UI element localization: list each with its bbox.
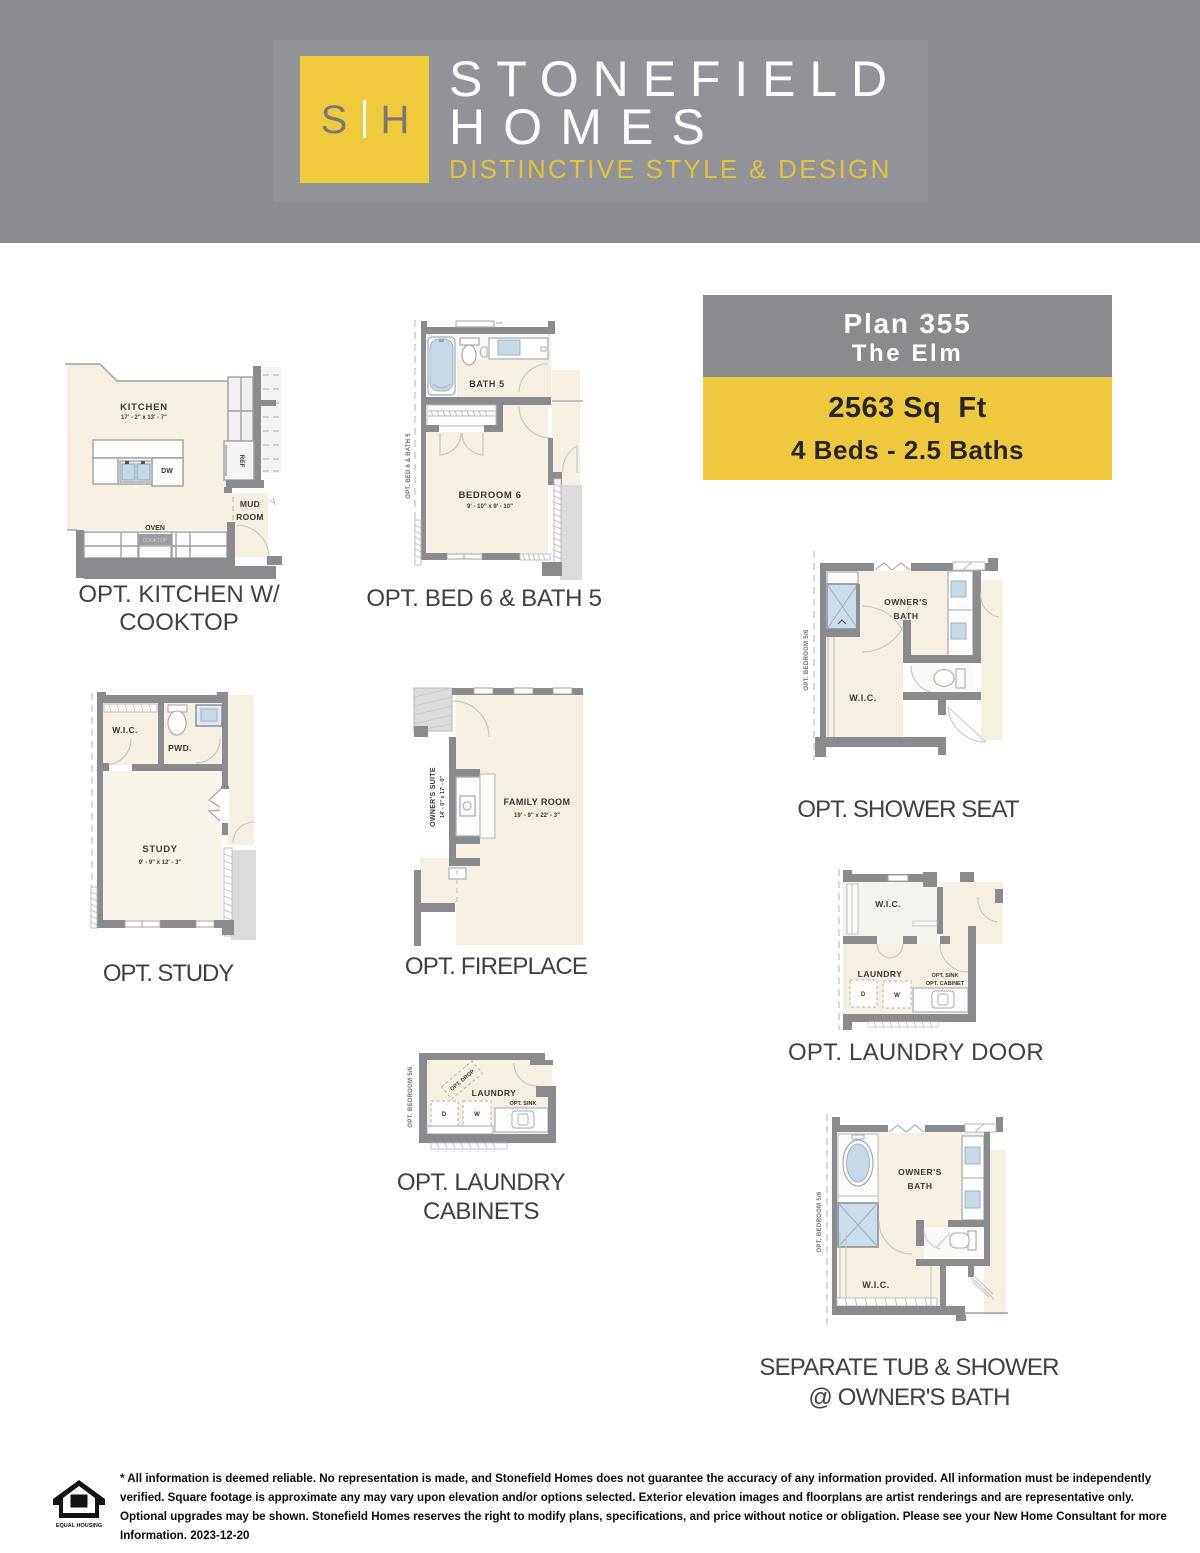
svg-text:MUD: MUD [240,499,260,509]
svg-text:S: S [321,98,348,142]
svg-text:D: D [442,1112,447,1118]
svg-text:COOKTOP: COOKTOP [143,538,169,544]
svg-text:W.I.C.: W.I.C. [862,1280,890,1290]
svg-text:14' - 0" x 17' - 0": 14' - 0" x 17' - 0" [440,776,446,818]
svg-text:ROOM: ROOM [236,512,264,522]
svg-text:OVEN: OVEN [145,525,165,532]
svg-text:REF: REF [238,455,245,468]
svg-text:OWNER'S: OWNER'S [884,597,928,607]
svg-text:W: W [474,1112,480,1118]
svg-text:OPT. BEDROOM 5/6: OPT. BEDROOM 5/6 [804,629,810,691]
svg-text:OWNER'S SUITE: OWNER'S SUITE [430,767,437,827]
svg-text:W.I.C.: W.I.C. [875,899,901,909]
svg-text:KITCHEN: KITCHEN [120,402,168,413]
svg-text:W.I.C.: W.I.C. [849,693,877,703]
svg-text:LAUNDRY: LAUNDRY [858,969,903,979]
svg-text:PWD.: PWD. [168,743,192,753]
svg-text:9' - 10" x 9' - 10": 9' - 10" x 9' - 10" [467,504,513,510]
svg-text:W.I.C.: W.I.C. [112,725,138,735]
svg-text:OPT. BED 6 & BATH 5: OPT. BED 6 & BATH 5 [406,433,412,499]
svg-text:OPT. SINK: OPT. SINK [932,973,959,979]
svg-text:OPT. SINK: OPT. SINK [510,1101,537,1107]
svg-text:OPT. BEDROOM 5/6: OPT. BEDROOM 5/6 [408,1066,414,1128]
svg-text:OPT. BEDROOM 5/6: OPT. BEDROOM 5/6 [817,1191,823,1253]
svg-text:D: D [861,992,866,998]
svg-text:H: H [381,98,410,142]
svg-text:LAUNDRY: LAUNDRY [472,1088,517,1098]
svg-text:19' - 9" x 22' - 3": 19' - 9" x 22' - 3" [514,813,560,819]
svg-text:BATH: BATH [908,1181,933,1191]
svg-text:BEDROOM 6: BEDROOM 6 [459,490,522,501]
svg-text:W: W [894,993,900,999]
svg-text:9' - 9" x 12' - 3": 9' - 9" x 12' - 3" [139,860,182,866]
svg-text:DW: DW [161,468,173,475]
svg-text:17' - 2" x 13' - 7": 17' - 2" x 13' - 7" [121,415,167,421]
svg-text:OPT. CABINET: OPT. CABINET [926,981,965,987]
svg-text:STUDY: STUDY [142,844,177,855]
svg-text:FAMILY ROOM: FAMILY ROOM [504,797,571,807]
svg-text:EQUAL HOUSING: EQUAL HOUSING [56,1523,102,1529]
svg-text:BATH 5: BATH 5 [469,379,504,389]
svg-text:OWNER'S: OWNER'S [898,1167,942,1177]
